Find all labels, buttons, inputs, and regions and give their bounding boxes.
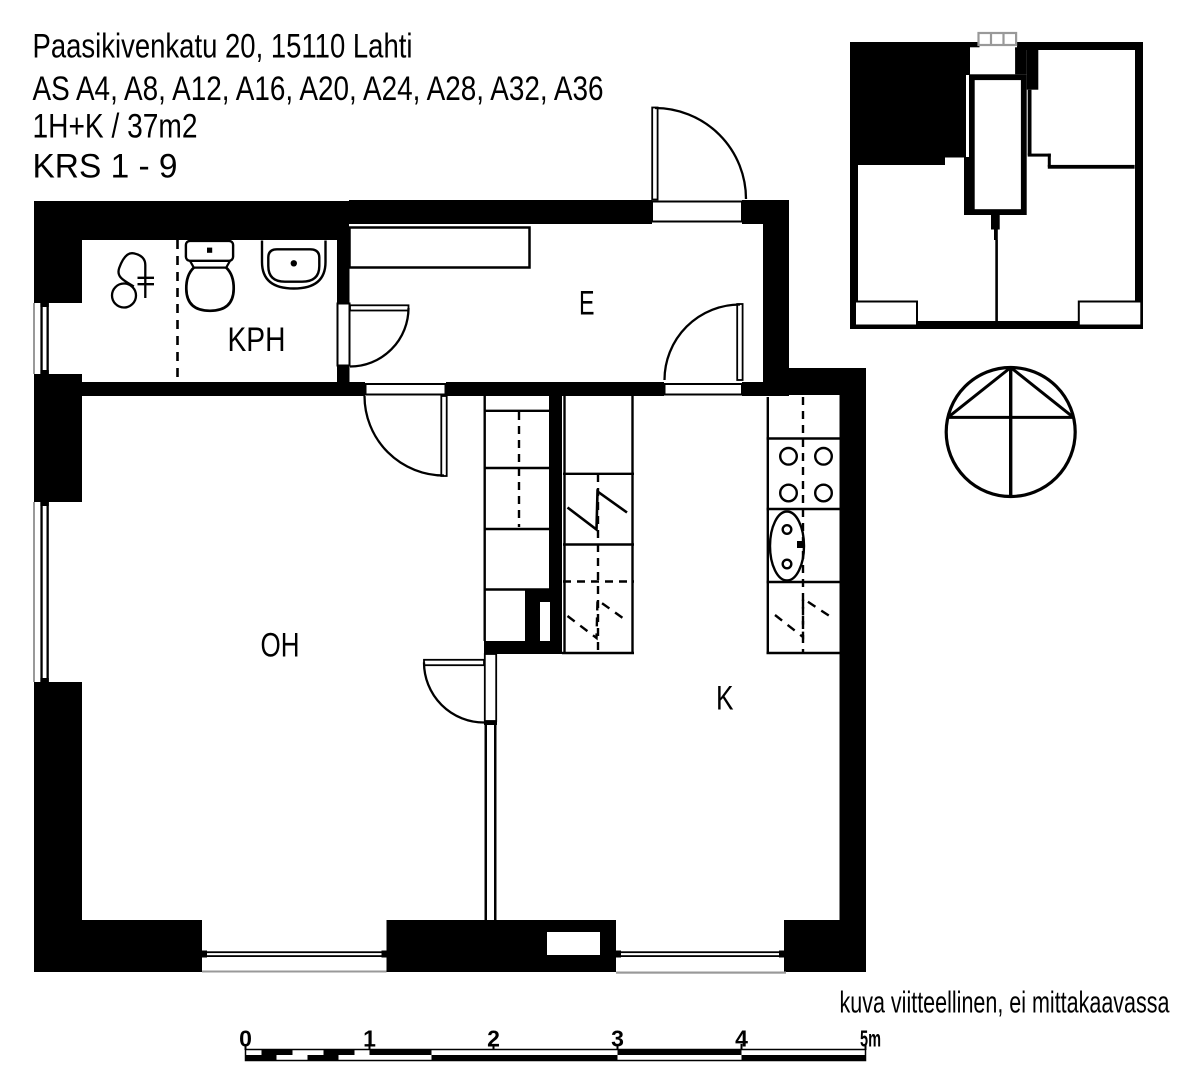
svg-text:kuva viitteellinen, ei mittaka: kuva viitteellinen, ei mittakaavassa (840, 985, 1171, 1020)
svg-text:5m: 5m (860, 1026, 881, 1052)
svg-text:K: K (716, 680, 734, 718)
svg-text:2: 2 (487, 1026, 500, 1052)
svg-text:1H+K / 37m2: 1H+K / 37m2 (33, 108, 198, 146)
svg-text:Paasikivenkatu 20, 15110 Lahti: Paasikivenkatu 20, 15110 Lahti (33, 28, 413, 66)
svg-text:KPH: KPH (228, 321, 286, 359)
svg-text:4: 4 (735, 1026, 748, 1052)
svg-text:3: 3 (611, 1026, 624, 1052)
svg-text:KRS 1 - 9: KRS 1 - 9 (33, 148, 178, 186)
svg-text:E: E (579, 285, 595, 323)
svg-text:OH: OH (261, 627, 300, 665)
svg-text:1: 1 (363, 1026, 376, 1052)
svg-text:AS A4, A8, A12, A16, A20, A24,: AS A4, A8, A12, A16, A20, A24, A28, A32,… (33, 70, 604, 108)
svg-text:0: 0 (239, 1026, 252, 1052)
